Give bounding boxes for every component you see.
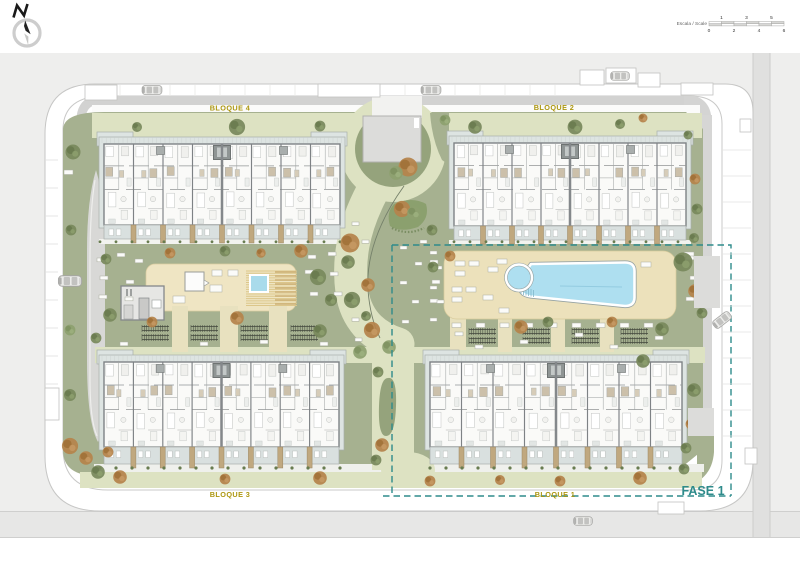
svg-text:2: 2 (733, 28, 736, 34)
svg-text:0: 0 (708, 28, 711, 34)
svg-text:BLOQUE 2: BLOQUE 2 (534, 103, 575, 112)
svg-text:FASE 1: FASE 1 (681, 484, 724, 498)
svg-text:5: 5 (770, 15, 773, 21)
svg-text:BLOQUE 3: BLOQUE 3 (210, 490, 251, 499)
svg-text:BLOQUE 1: BLOQUE 1 (535, 490, 576, 499)
svg-text:6: 6 (783, 28, 786, 34)
svg-text:1: 1 (720, 15, 723, 21)
svg-text:BLOQUE 4: BLOQUE 4 (210, 104, 251, 113)
svg-text:4: 4 (758, 28, 761, 34)
svg-text:Escala / Scale: Escala / Scale (677, 21, 708, 27)
svg-text:3: 3 (745, 15, 748, 21)
